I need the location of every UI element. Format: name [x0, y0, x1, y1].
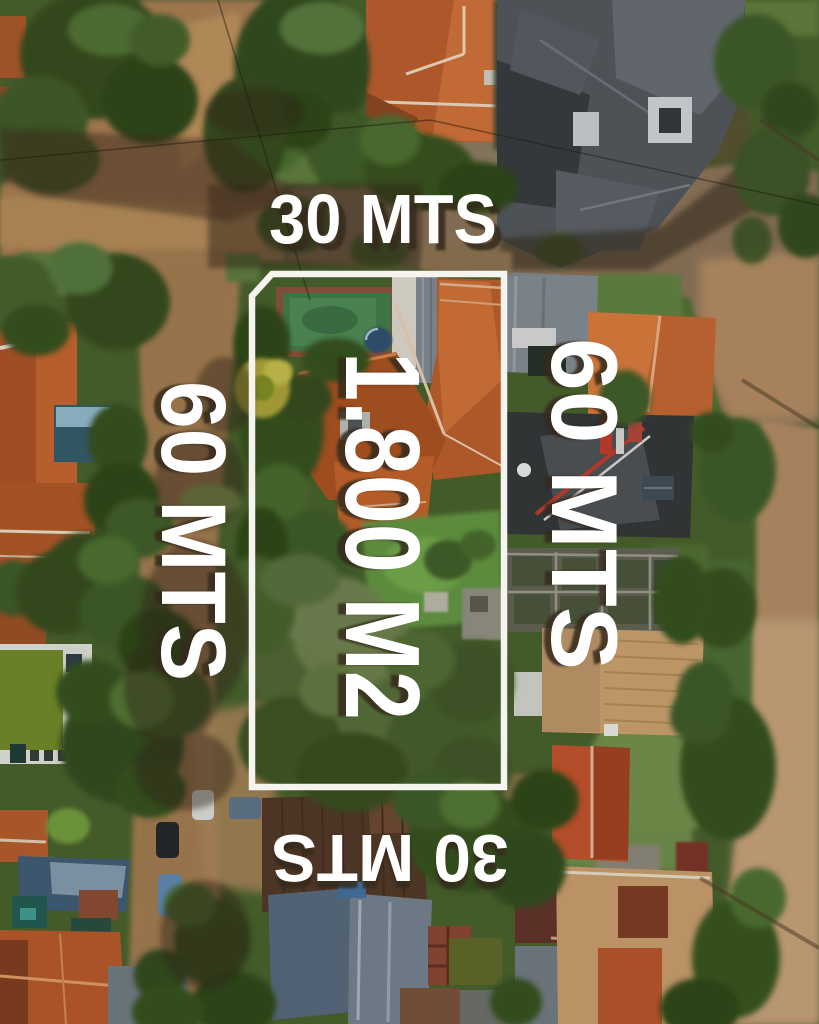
svg-text:60 MTS: 60 MTS — [142, 381, 244, 681]
svg-text:60 MTS: 60 MTS — [532, 338, 637, 670]
svg-text:1.800 M2: 1.800 M2 — [323, 352, 441, 720]
svg-text:30 MTS: 30 MTS — [269, 180, 497, 258]
svg-text:30 MTS: 30 MTS — [272, 820, 509, 895]
